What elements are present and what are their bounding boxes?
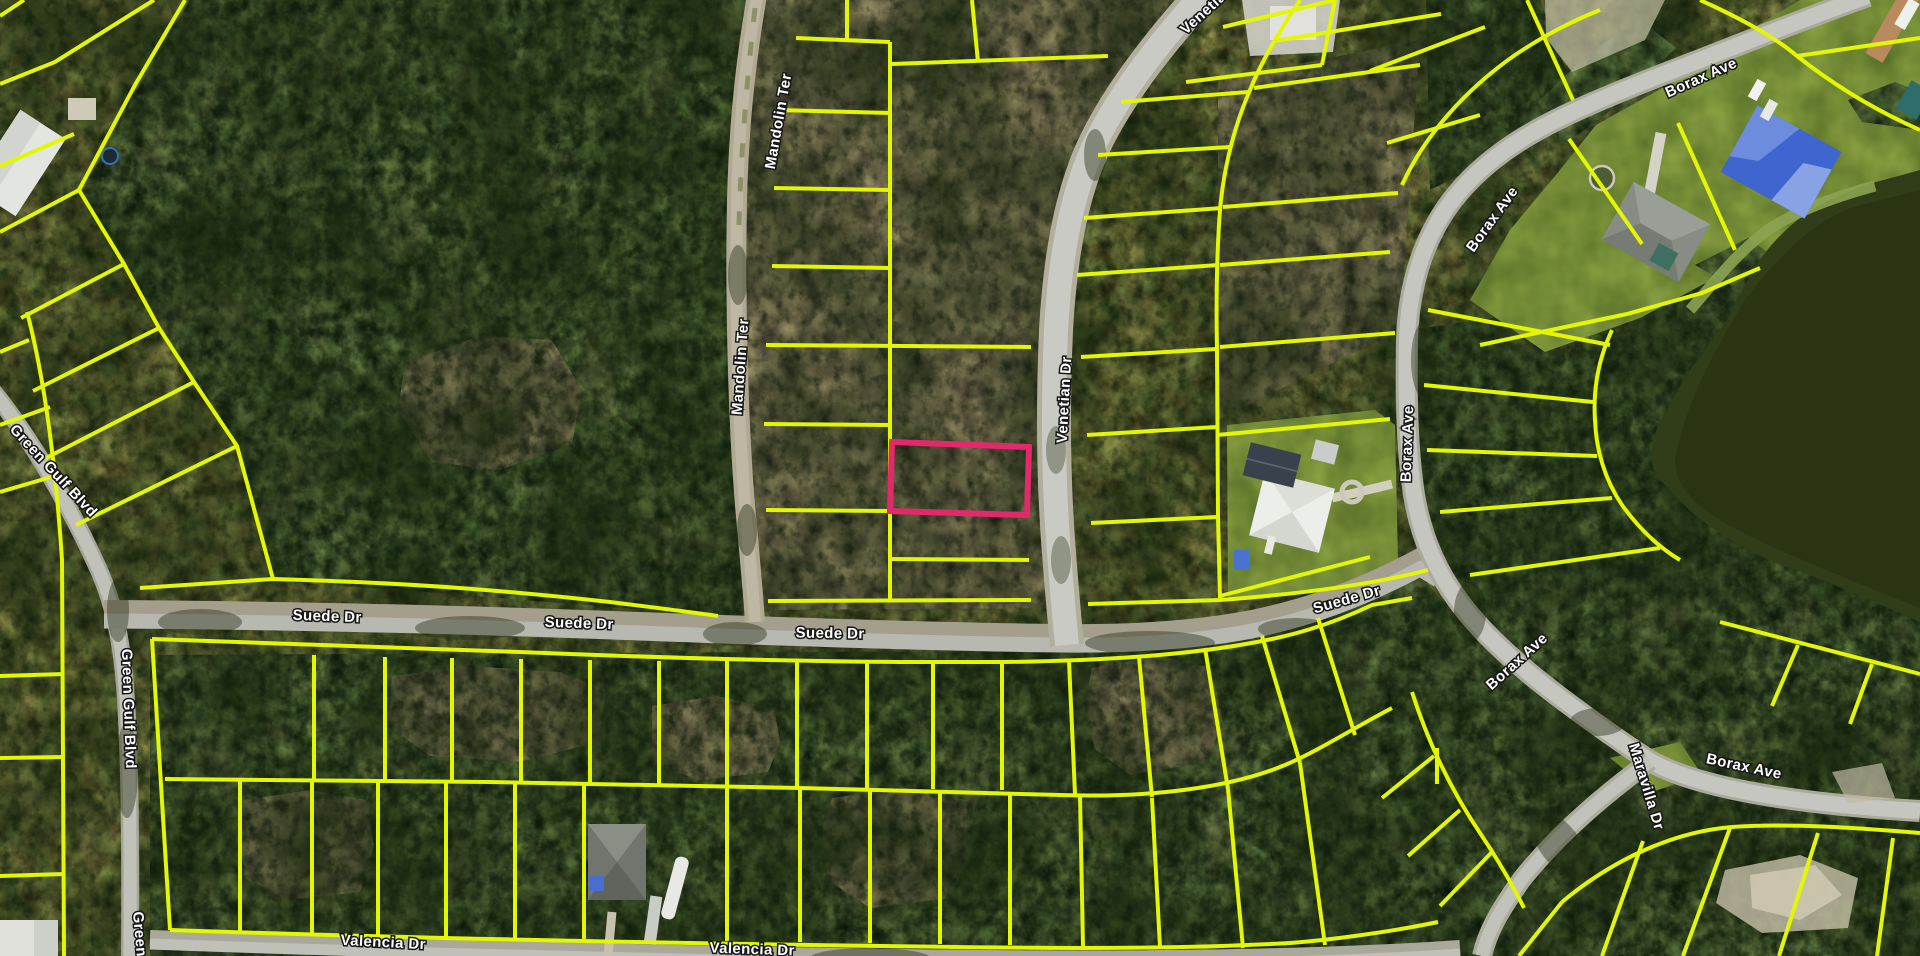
svg-text:Borax Ave: Borax Ave (1398, 405, 1418, 482)
svg-text:Suede Dr: Suede Dr (292, 607, 362, 626)
svg-text:Suede Dr: Suede Dr (544, 614, 614, 633)
svg-text:Suede Dr: Suede Dr (795, 624, 864, 642)
svg-text:Valencia Dr: Valencia Dr (709, 940, 795, 956)
